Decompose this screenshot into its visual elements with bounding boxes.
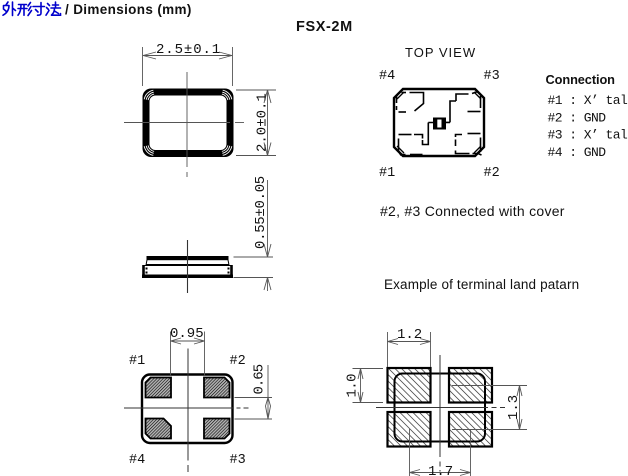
svg-text:1.3: 1.3: [506, 395, 522, 420]
svg-text:0.55±0.05: 0.55±0.05: [253, 176, 269, 249]
svg-text:/ Dimensions (mm): / Dimensions (mm): [65, 2, 192, 17]
svg-text:2.5±0.1: 2.5±0.1: [156, 42, 221, 58]
svg-text:#3 : X’ tal: #3 : X’ tal: [548, 128, 628, 143]
svg-text:1.7: 1.7: [428, 464, 453, 476]
svg-text:#4: #4: [379, 69, 395, 84]
svg-text:1.2: 1.2: [397, 327, 422, 343]
svg-text:Example of terminal land pata: Example of terminal land patarn: [384, 277, 579, 292]
svg-text:#1: #1: [379, 166, 395, 181]
svg-text:#1 : X’ tal: #1 : X’ tal: [548, 93, 628, 108]
svg-text:#2, #3 Connected with cover: #2, #3 Connected with cover: [380, 203, 565, 219]
svg-text:0.95: 0.95: [170, 326, 204, 342]
svg-text:#1: #1: [129, 354, 145, 369]
svg-text:2.0±0.1: 2.0±0.1: [255, 93, 271, 152]
svg-text:#4: #4: [129, 453, 145, 468]
svg-text:#4 : GND: #4 : GND: [548, 145, 607, 160]
svg-text:1.0: 1.0: [345, 374, 361, 398]
svg-text:FSX-2M: FSX-2M: [296, 19, 353, 35]
svg-text:0.65: 0.65: [252, 364, 268, 394]
svg-text:#2: #2: [230, 354, 246, 369]
svg-text:#2 : GND: #2 : GND: [548, 111, 607, 126]
svg-text:#2: #2: [484, 166, 500, 181]
svg-text:Connection: Connection: [546, 72, 616, 87]
svg-text:#3: #3: [230, 453, 246, 468]
svg-text:TOP VIEW: TOP VIEW: [405, 45, 476, 60]
svg-text:#3: #3: [484, 69, 500, 84]
